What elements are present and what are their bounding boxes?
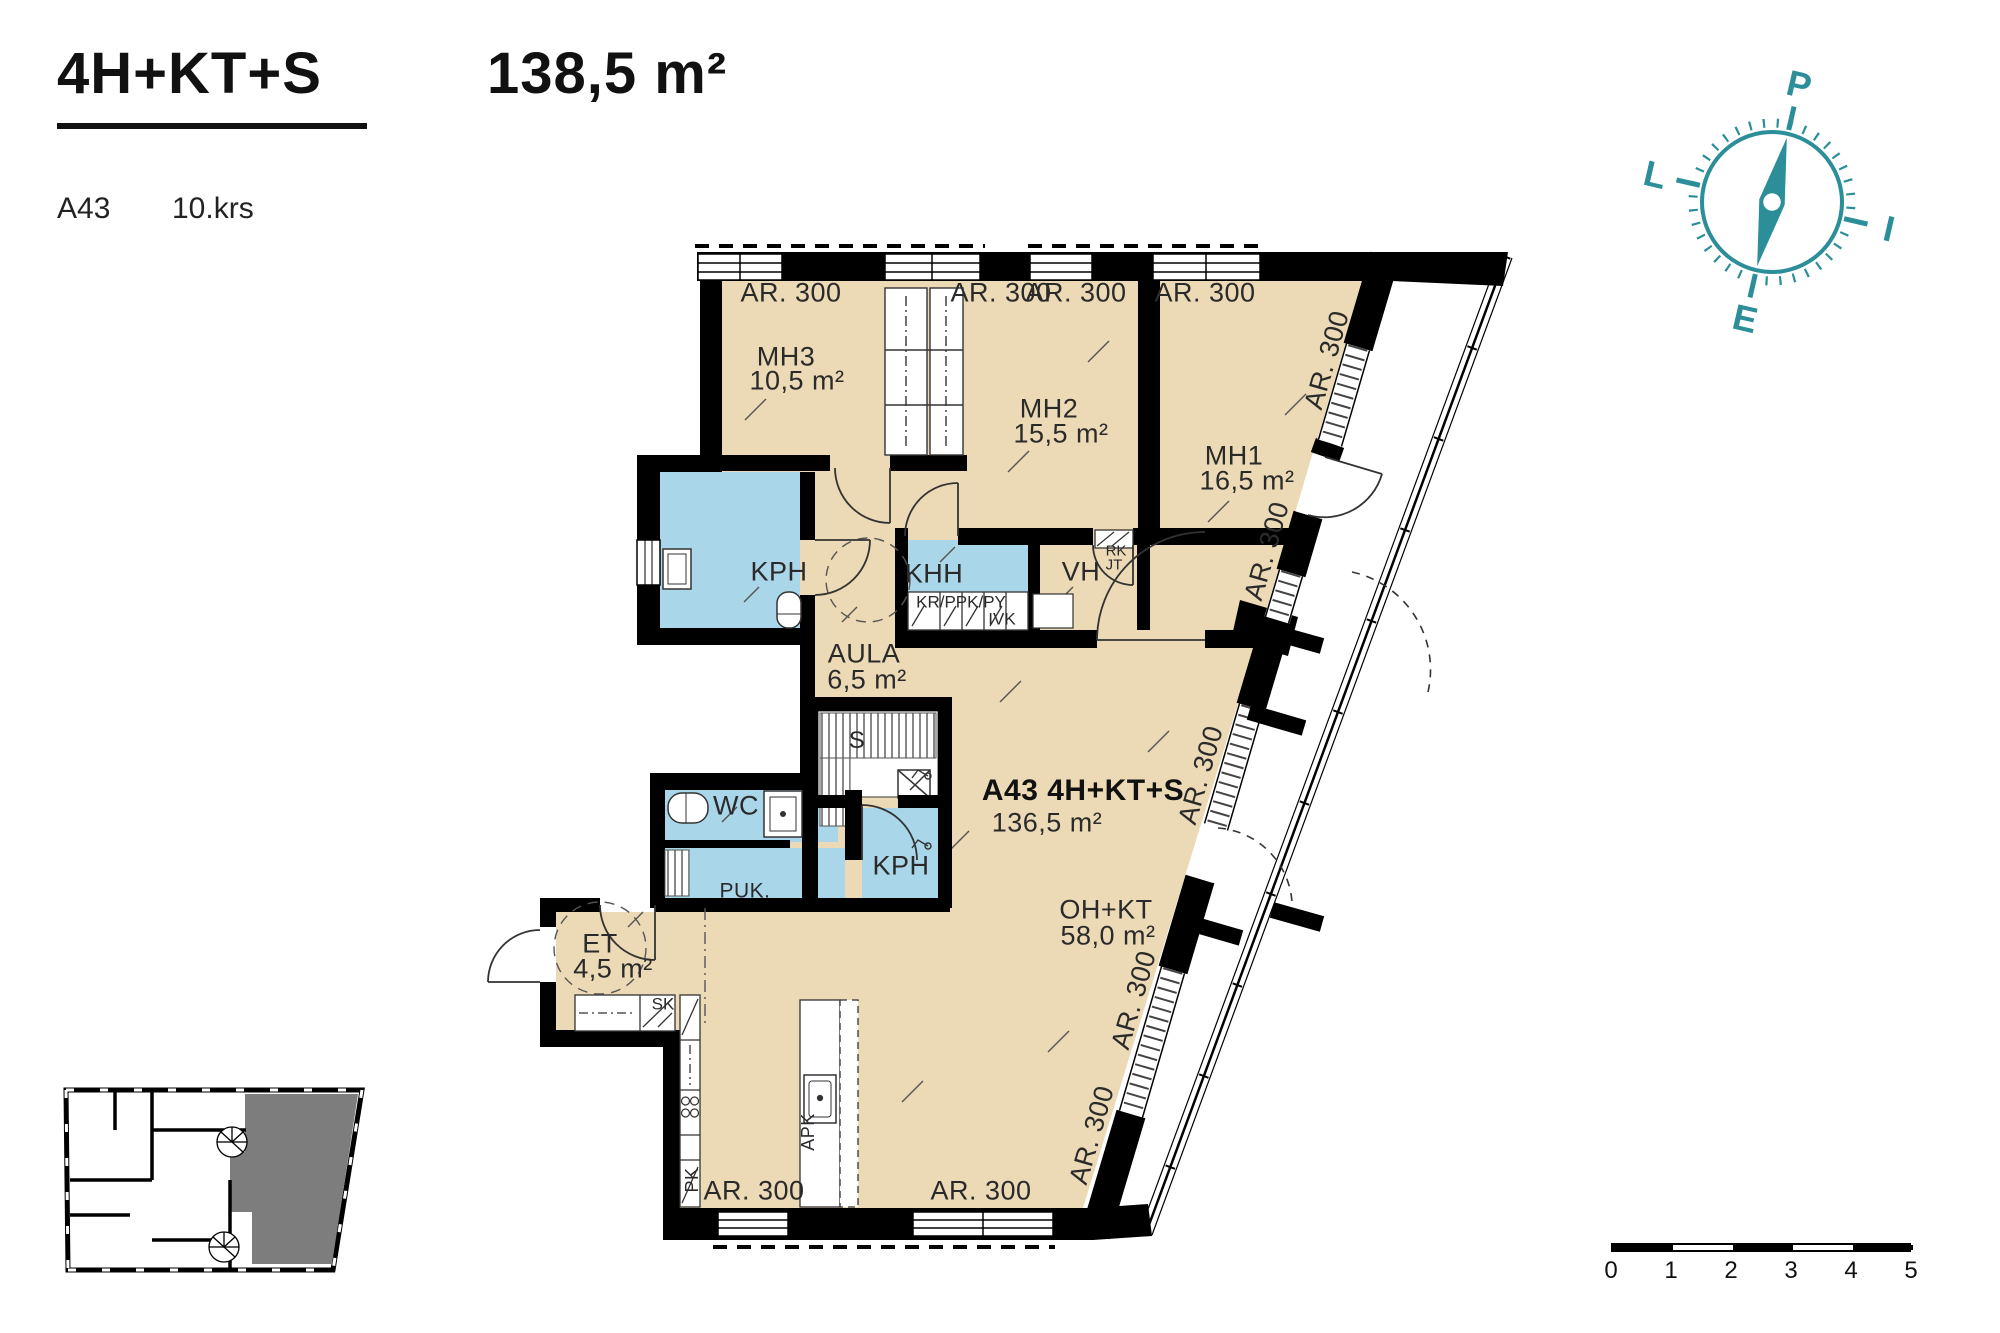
- scale-tick: 2: [1724, 1257, 1737, 1285]
- floorplan-sheet: P I E L: [0, 0, 2000, 1333]
- apartment-plan-area: 136,5 m²: [992, 810, 1103, 837]
- scale-tick: 5: [1904, 1257, 1917, 1285]
- apartment-type-title: 4H+KT+S: [57, 40, 367, 129]
- apartment-plan-title: A43 4H+KT+S: [982, 776, 1184, 806]
- room-label-sauna: S: [849, 729, 866, 753]
- scale-tick: 0: [1604, 1257, 1617, 1285]
- wall-label-ar300: AR. 300: [740, 280, 841, 307]
- room-label-khh: KHH: [905, 561, 964, 588]
- room-area-mh2: 15,5 m²: [1013, 421, 1108, 448]
- scale-tick: 4: [1844, 1257, 1857, 1285]
- wall-label-ar300: AR. 300: [930, 1178, 1031, 1205]
- room-area-et: 4,5 m²: [573, 956, 653, 983]
- room-label-ohkt: OH+KT: [1059, 897, 1152, 924]
- apartment-total-area: 138,5 m²: [487, 40, 727, 107]
- room-label-vh: VH: [1062, 559, 1101, 586]
- wall-label-ar300: AR. 300: [703, 1178, 804, 1205]
- room-label-kph-top: KPH: [750, 559, 807, 586]
- label-ivk: IVK: [988, 611, 1015, 628]
- locator-map: [0, 0, 2000, 1333]
- room-area-aula: 6,5 m²: [827, 667, 907, 694]
- label-apk: APK: [799, 1113, 817, 1151]
- label-pk: PK: [683, 1167, 701, 1192]
- room-label-wc: WC: [713, 793, 759, 820]
- label-sk: SK: [652, 996, 675, 1013]
- room-area-mh1: 16,5 m²: [1199, 468, 1294, 495]
- room-label-kph-lower: KPH: [872, 853, 929, 880]
- scale-tick: 3: [1784, 1257, 1797, 1285]
- wall-label-ar300: AR. 300: [1154, 280, 1255, 307]
- label-jt: JT: [1106, 558, 1123, 573]
- wall-label-ar300: AR. 300: [1025, 280, 1126, 307]
- apartment-id: A43: [57, 192, 110, 226]
- room-label-aula: AULA: [828, 641, 901, 668]
- room-label-puk: PUK.: [719, 881, 770, 902]
- scale-bar: [1611, 1243, 1911, 1252]
- room-area-mh3: 10,5 m²: [749, 368, 844, 395]
- label-kr-ppk-py: KR/PPK/PY: [916, 594, 1006, 611]
- floor-number: 10.krs: [172, 192, 254, 226]
- scale-tick: 1: [1664, 1257, 1677, 1285]
- room-area-ohkt: 58,0 m²: [1060, 923, 1155, 950]
